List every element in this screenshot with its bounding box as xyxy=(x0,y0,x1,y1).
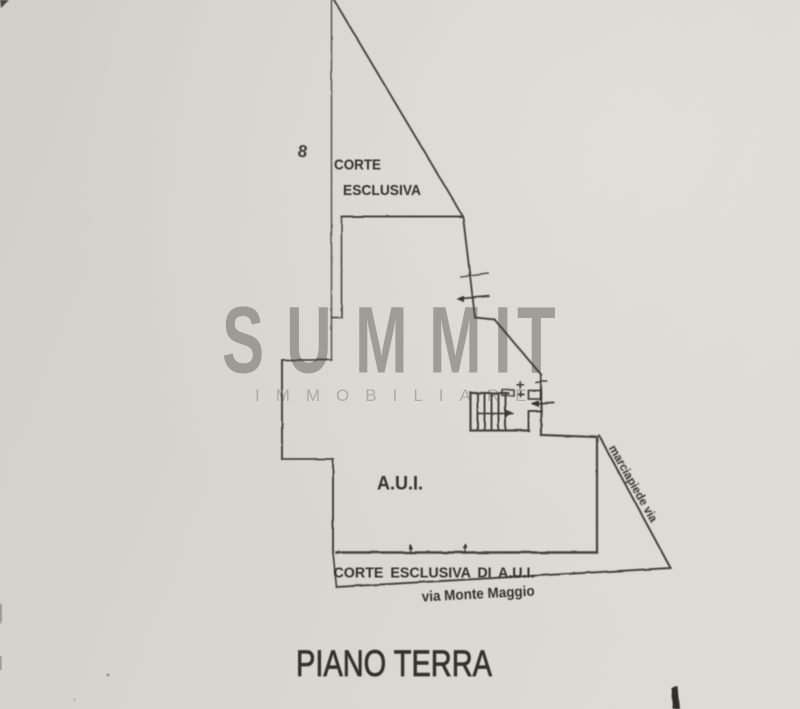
svg-text:ESCLUSIVA: ESCLUSIVA xyxy=(343,182,421,199)
svg-text:CORTE: CORTE xyxy=(334,157,381,174)
svg-text:CORTE ESCLUSIVA DI A.U.I.: CORTE ESCLUSIVA DI A.U.I. xyxy=(334,566,535,582)
svg-text:PIANO TERRA: PIANO TERRA xyxy=(296,643,492,684)
svg-text:A.U.I.: A.U.I. xyxy=(377,473,423,495)
